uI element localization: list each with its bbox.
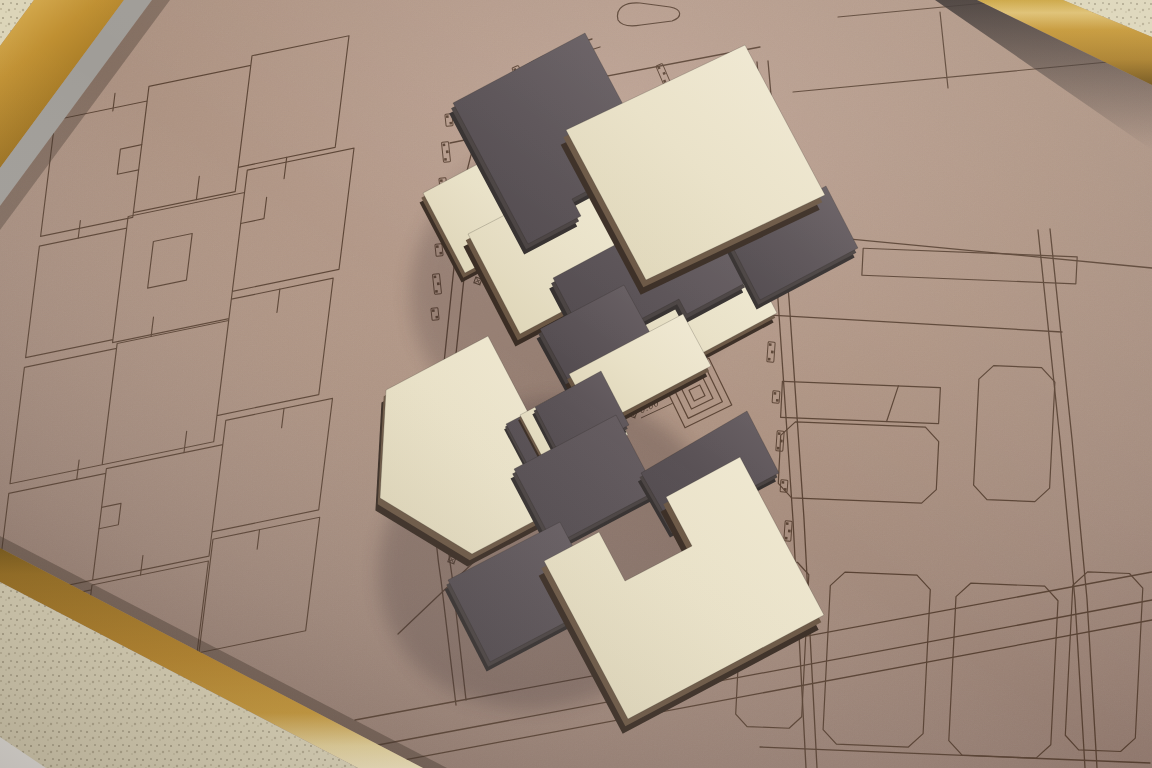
- lighting-overlay: [0, 0, 1152, 768]
- architectural-model-photo: 0.00 +0.84 -1.04 -0.84: [0, 0, 1152, 768]
- model-scene: 0.00 +0.84 -1.04 -0.84: [0, 0, 1152, 768]
